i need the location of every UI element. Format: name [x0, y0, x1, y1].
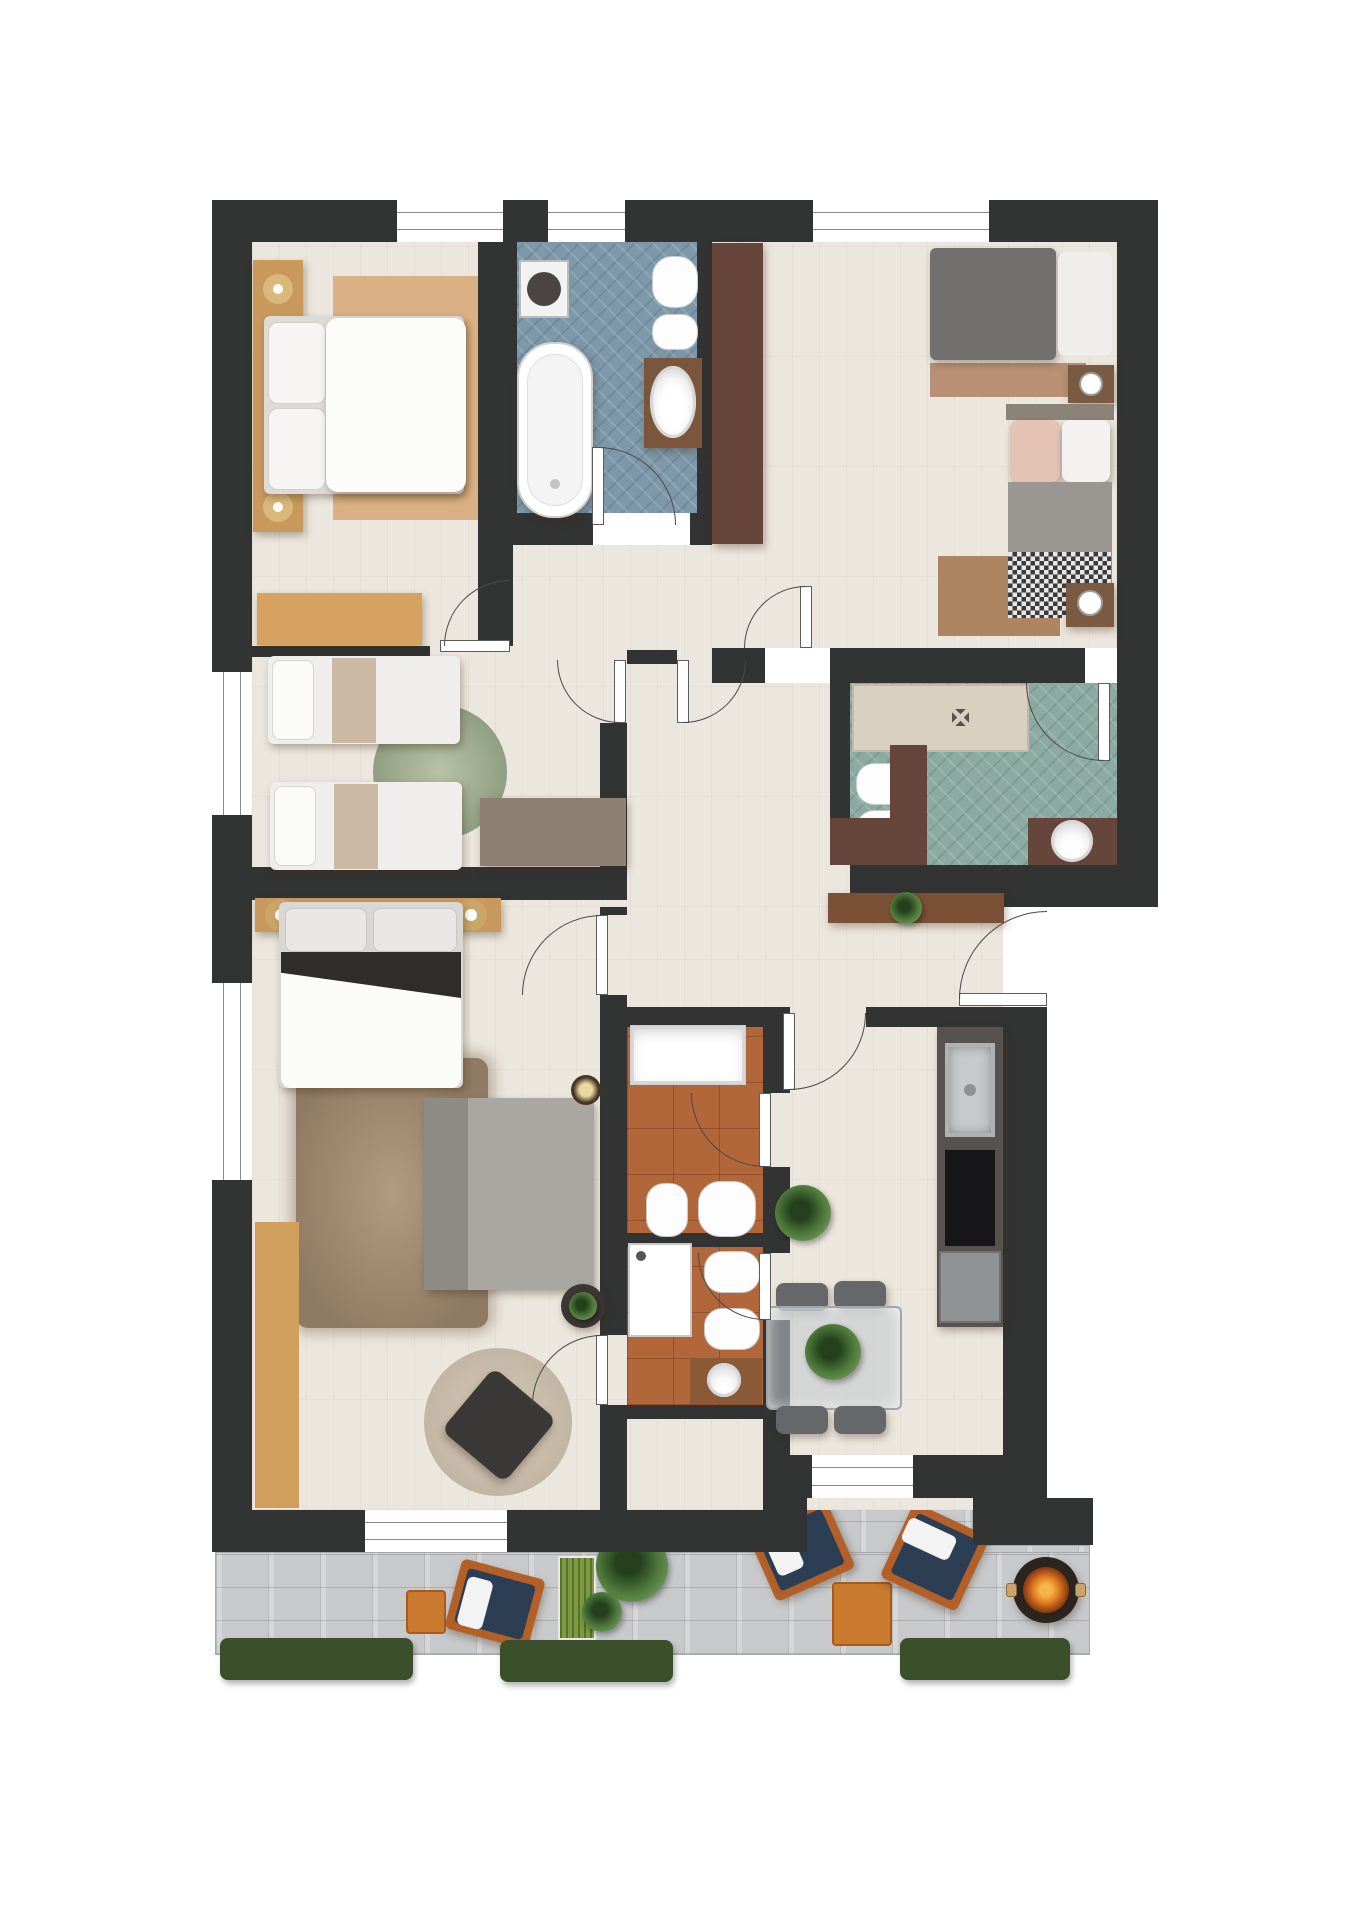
- wall-corridor-left-b: [600, 995, 627, 1007]
- window-top-bedroom3: [813, 200, 989, 242]
- window-top-bedroom1: [397, 200, 503, 242]
- flower-planter-middle: [500, 1640, 673, 1682]
- bedroom2-bedB-pillow: [274, 786, 316, 866]
- bedroom2-bedA-pillow: [272, 660, 314, 740]
- hall-cabinet-vertical: [890, 745, 927, 865]
- wc-toilet-upper: [698, 1181, 756, 1237]
- wall-hall-throat-stub: [627, 650, 677, 664]
- bedroom2-bedA-throw: [332, 658, 376, 743]
- dining-chair-top-right: [834, 1281, 886, 1309]
- wall-living-bottom: [212, 1510, 807, 1552]
- wc-bidet-upper: [646, 1183, 688, 1237]
- dining-chair-bottom-right: [834, 1406, 886, 1434]
- wall-tealbath-bottom: [850, 865, 1003, 893]
- bedroom3-lamp1: [1079, 372, 1103, 396]
- fire-bowl-handle-right: [1075, 1583, 1086, 1597]
- master-pillow-left: [285, 908, 367, 952]
- wall-bed1-bath-divider: [478, 242, 517, 513]
- terrace-side-table-2: [832, 1582, 892, 1646]
- fire-bowl-handle-left: [1006, 1583, 1017, 1597]
- bathtub-drain: [550, 479, 560, 489]
- window-bottom-dining: [812, 1455, 913, 1498]
- bath-blue-bidet: [652, 314, 698, 350]
- shower-tray-teal: [852, 684, 1029, 752]
- wall-step-connector: [763, 1455, 807, 1552]
- bedroom2-dresser: [480, 798, 626, 866]
- bedroom2-bedB-throw: [334, 784, 378, 869]
- fire-bowl-embers: [1023, 1567, 1069, 1613]
- shower-drain-teal: [952, 709, 969, 726]
- gap-bath-teal-door: [1085, 648, 1117, 683]
- wall-kitchen-right: [1003, 1007, 1047, 1498]
- dining-table-plant: [805, 1324, 861, 1380]
- bedroom3-bed2-pillow-blush: [1010, 420, 1060, 482]
- bedroom3-bed1-pillows: [1058, 252, 1112, 356]
- wall-wc-kitchen-top-b: [866, 1007, 1003, 1027]
- wall-right-upper: [1117, 242, 1158, 907]
- bedroom1-lamp-top: [263, 274, 293, 304]
- bedroom3-bed2-headboard: [1006, 404, 1114, 420]
- bedroom3-bed1-duvet: [930, 248, 1056, 360]
- hall-cabinet-horizontal: [830, 818, 892, 865]
- kitchen-hob: [945, 1150, 995, 1246]
- bedroom3-wardrobe: [712, 243, 763, 544]
- sofa-throw: [424, 1098, 468, 1290]
- dining-chair-bottom-left: [776, 1406, 828, 1434]
- window-top-bathroom: [548, 200, 625, 242]
- flower-planter-left: [220, 1638, 413, 1680]
- bedroom1-lamp-bottom: [263, 492, 293, 522]
- window-left-master: [212, 983, 252, 1180]
- window-bottom-living: [365, 1510, 507, 1552]
- wall-wc-bottom: [627, 1405, 763, 1419]
- floorplan-page: [0, 0, 1358, 1920]
- wc-shower-head: [636, 1251, 646, 1261]
- master-pillow-right: [373, 908, 457, 952]
- wall-wc-kitchen-top-a: [600, 1007, 790, 1027]
- kitchen-faucet: [964, 1084, 976, 1096]
- wall-step-bottom-right: [973, 1498, 1093, 1545]
- bedroom3-lamp2: [1077, 590, 1103, 616]
- bedroom3-bed2-pillow-white: [1062, 420, 1110, 482]
- washing-machine-drum: [527, 272, 561, 306]
- gap-bedroom3-door: [765, 648, 830, 683]
- terrace-monstera-leaf: [582, 1592, 622, 1632]
- window-left-bedroom2: [212, 672, 252, 815]
- bedroom1-pillow-top: [268, 322, 326, 404]
- floorplan-canvas: [0, 0, 1358, 1920]
- bath-blue-sink: [650, 366, 696, 438]
- bedroom1-duvet: [326, 318, 466, 492]
- wall-wc-left-a: [600, 1027, 627, 1335]
- hall-console-plant: [890, 892, 922, 924]
- living-sideboard: [255, 1222, 299, 1508]
- flower-planter-right: [900, 1638, 1070, 1680]
- wall-corner-bottom-right: [1003, 865, 1158, 907]
- wc-basin-round: [707, 1363, 741, 1397]
- bedroom1-pillow-bottom: [268, 408, 326, 490]
- side-table-plant: [569, 1292, 597, 1320]
- wall-corridor-left-a: [600, 907, 627, 915]
- bath-teal-sink: [1051, 820, 1093, 862]
- candle-bowl: [571, 1075, 601, 1105]
- wall-top: [212, 200, 1158, 242]
- wall-bed2-bottom: [212, 867, 627, 900]
- rug-bedroom3-top: [930, 363, 1086, 397]
- bedroom1-desk: [257, 593, 422, 645]
- kitchen-succulent-plant: [775, 1185, 831, 1241]
- kitchen-fridge: [939, 1251, 1001, 1323]
- wall-wc-left-b: [600, 1405, 627, 1510]
- wc-sink-console: [630, 1025, 746, 1085]
- terrace-side-table-1: [406, 1590, 446, 1634]
- bath-blue-toilet: [652, 256, 698, 308]
